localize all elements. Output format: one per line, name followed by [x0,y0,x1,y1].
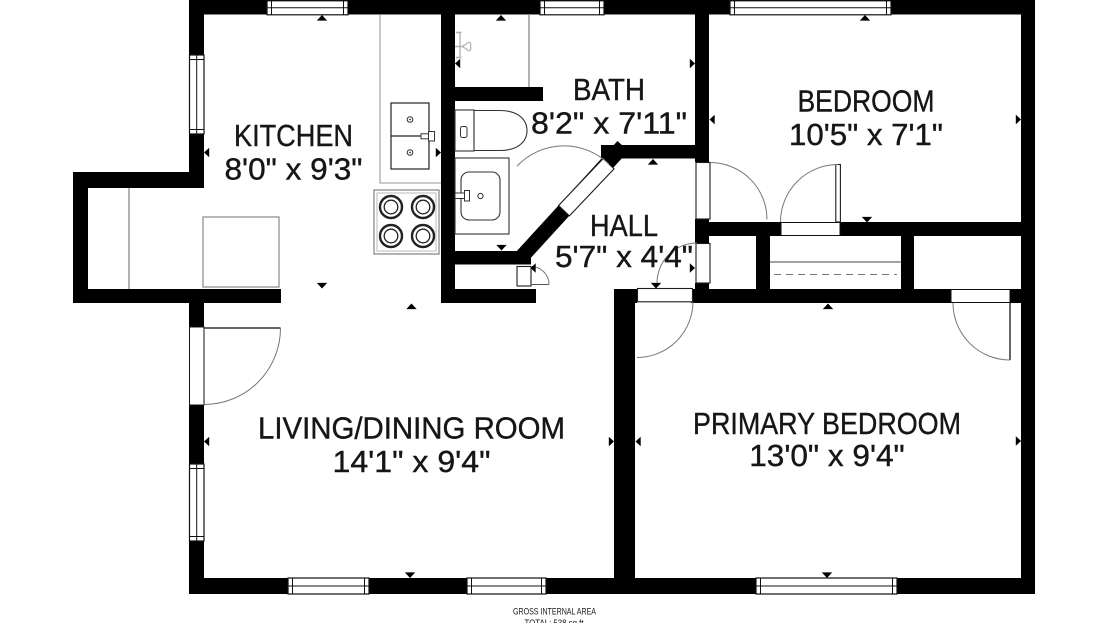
svg-text:BEDROOM: BEDROOM [798,84,935,119]
svg-text:8'0" x 9'3": 8'0" x 9'3" [225,152,363,187]
svg-text:LIVING/DINING ROOM: LIVING/DINING ROOM [258,411,565,446]
svg-text:10'5" x 7'1": 10'5" x 7'1" [789,117,943,152]
svg-text:13'0" x 9'4": 13'0" x 9'4" [749,438,905,473]
svg-text:5'7" x 4'4": 5'7" x 4'4" [555,239,693,274]
svg-text:BATH: BATH [573,72,645,107]
svg-text:KITCHEN: KITCHEN [234,118,353,153]
svg-text:TOTAL: 538 sq ft: TOTAL: 538 sq ft [525,618,584,623]
svg-text:PRIMARY BEDROOM: PRIMARY BEDROOM [693,406,961,441]
svg-text:14'1" x 9'4": 14'1" x 9'4" [333,444,491,479]
svg-text:8'2" x 7'11": 8'2" x 7'11" [531,106,687,141]
svg-text:GROSS INTERNAL AREA: GROSS INTERNAL AREA [513,607,596,617]
svg-text:HALL: HALL [590,208,658,243]
